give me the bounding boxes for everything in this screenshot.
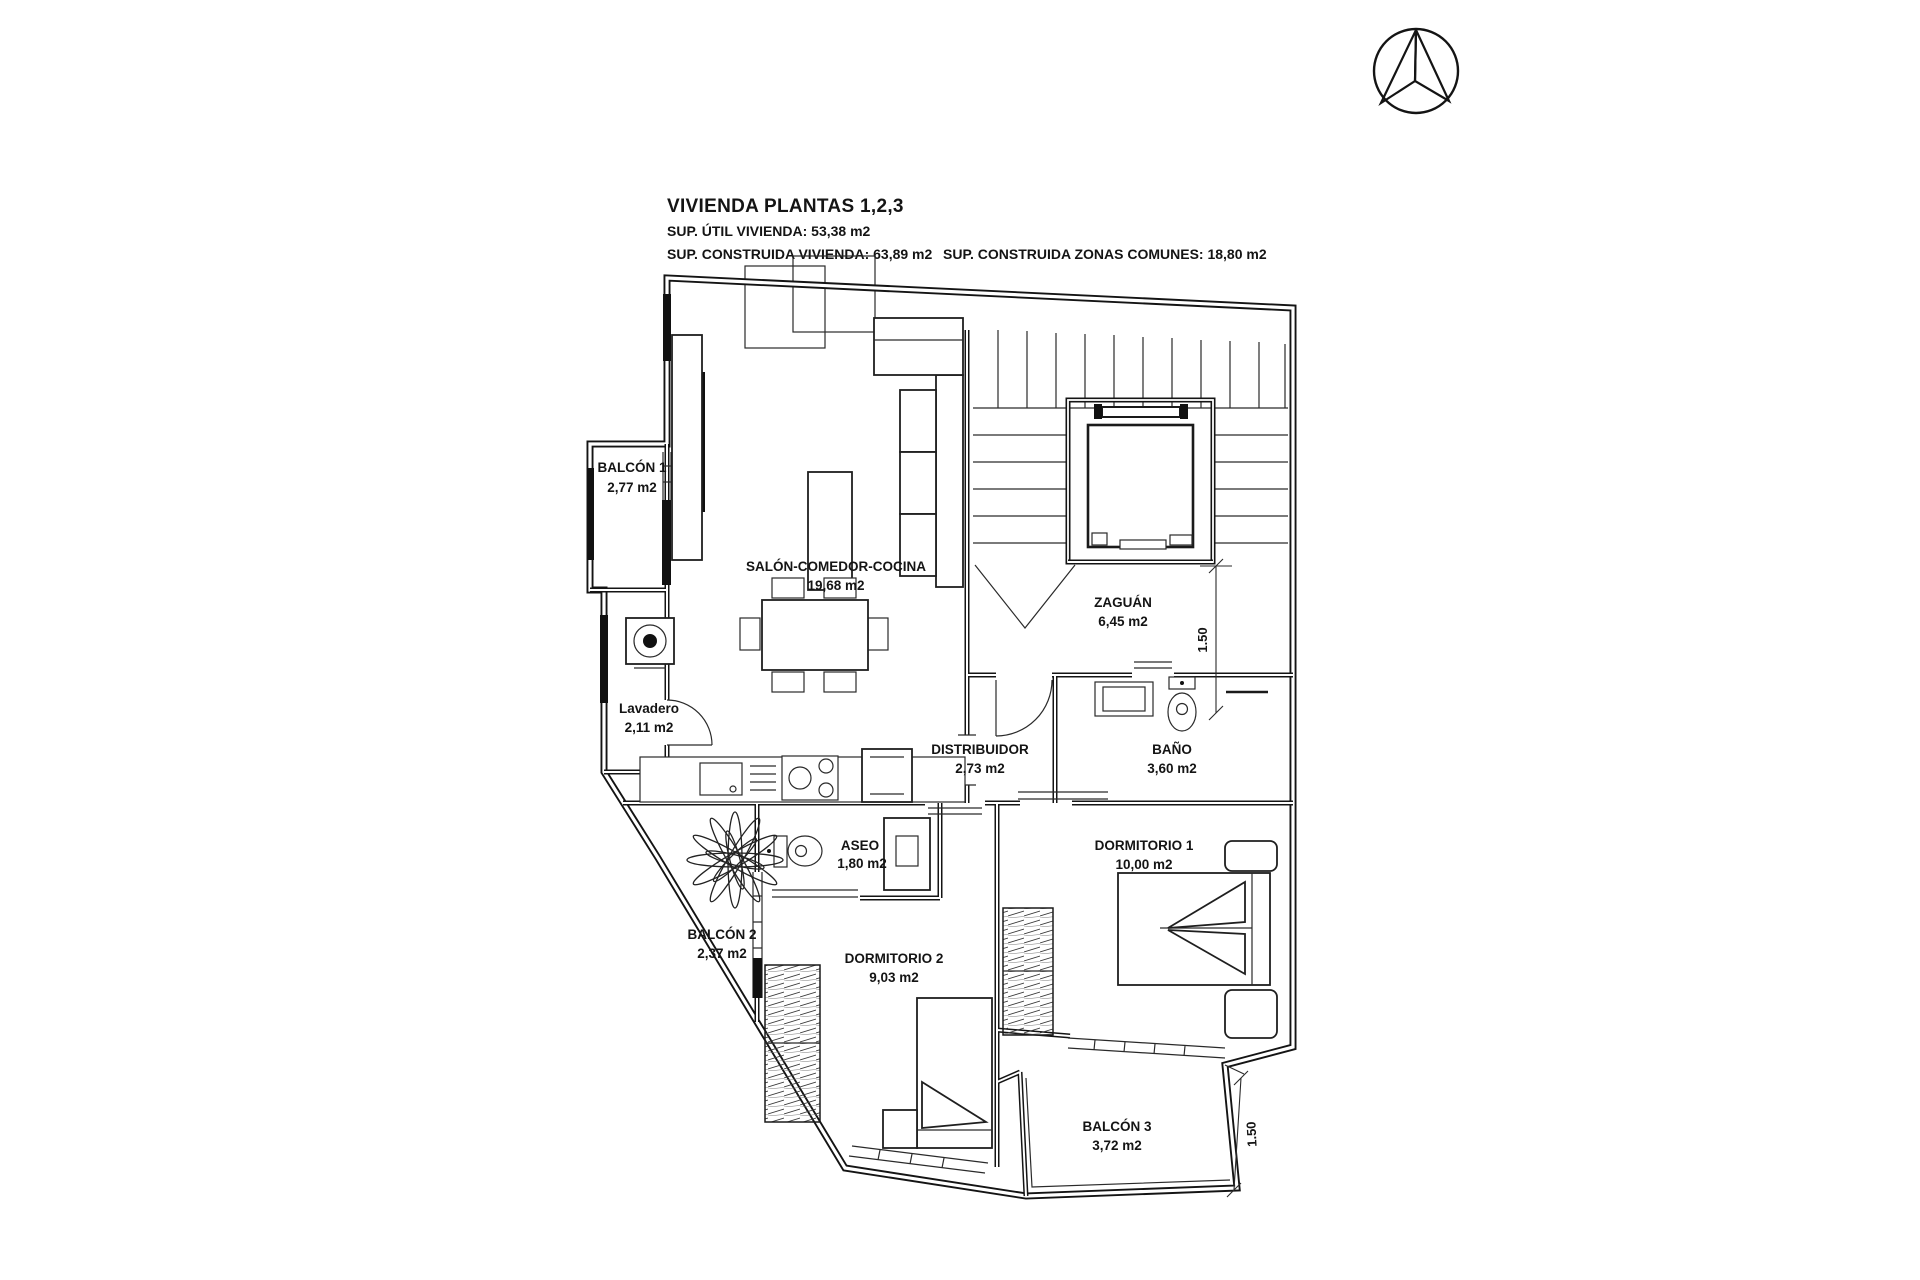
- surface-construida-line: SUP. CONSTRUIDA VIVIENDA: 63,89 m2: [667, 246, 933, 262]
- dormitorio2-furniture: [765, 965, 992, 1148]
- nightstand: [1225, 841, 1277, 871]
- door-bano: [1134, 662, 1172, 668]
- floor-plan-drawing: VIVIENDA PLANTAS 1,2,3 SUP. ÚTIL VIVIEND…: [0, 0, 1920, 1280]
- svg-text:BAÑO: BAÑO: [1152, 742, 1192, 757]
- svg-text:2,77 m2: 2,77 m2: [607, 480, 657, 495]
- svg-text:Lavadero: Lavadero: [619, 701, 679, 716]
- svg-text:2,73 m2: 2,73 m2: [955, 761, 1005, 776]
- plant: [687, 812, 783, 908]
- svg-text:10,00 m2: 10,00 m2: [1115, 857, 1172, 872]
- room-label-lavadero: Lavadero 2,11 m2: [619, 701, 679, 735]
- elevator: [1068, 400, 1213, 562]
- svg-text:6,45 m2: 6,45 m2: [1098, 614, 1148, 629]
- cabinet-tall: [672, 335, 702, 560]
- dimension-label: 1.50: [1195, 627, 1210, 652]
- window-salon-left: [663, 294, 671, 361]
- svg-text:ASEO: ASEO: [841, 838, 879, 853]
- surface-comunes-line: SUP. CONSTRUIDA ZONAS COMUNES: 18,80 m2: [943, 246, 1267, 262]
- bano-toilet: [1168, 677, 1196, 731]
- bed-single: [917, 998, 992, 1148]
- window-balcon2: [753, 958, 762, 998]
- window-balcon1-outer: [587, 468, 594, 560]
- page-title: VIVIENDA PLANTAS 1,2,3: [667, 196, 904, 217]
- svg-text:9,03 m2: 9,03 m2: [869, 970, 919, 985]
- room-label-bano: BAÑO 3,60 m2: [1147, 742, 1197, 776]
- dining-table: [740, 578, 888, 692]
- stove: [782, 756, 838, 800]
- sliding-door-aseo: [772, 890, 858, 897]
- svg-text:BALCÓN 3: BALCÓN 3: [1082, 1119, 1151, 1134]
- svg-text:2,11 m2: 2,11 m2: [625, 720, 674, 735]
- sofa: [808, 318, 963, 590]
- upper-structure-outline: [745, 256, 875, 348]
- bano-fixtures: [1095, 677, 1268, 731]
- dimension-label: 1.50: [1243, 1121, 1259, 1147]
- svg-text:BALCÓN 1: BALCÓN 1: [597, 460, 666, 475]
- room-label-balcon3: BALCÓN 3 3,72 m2: [1082, 1119, 1151, 1153]
- svg-text:1,80 m2: 1,80 m2: [837, 856, 887, 871]
- room-label-zaguan: ZAGUÁN 6,45 m2: [1094, 595, 1152, 629]
- floor-plan-sheet: VIVIENDA PLANTAS 1,2,3 SUP. ÚTIL VIVIEND…: [0, 0, 1920, 1280]
- door-zaguan-distribuidor: [996, 680, 1052, 736]
- stair-direction-arrow: [975, 565, 1075, 628]
- bed-double: [1118, 873, 1270, 985]
- sliding-door-dormitorio2: [928, 808, 982, 814]
- svg-text:DORMITORIO 2: DORMITORIO 2: [845, 951, 944, 966]
- elevator-door: [1102, 407, 1180, 417]
- nightstand: [1225, 990, 1277, 1038]
- svg-text:ZAGUÁN: ZAGUÁN: [1094, 595, 1152, 610]
- surface-util-line: SUP. ÚTIL VIVIENDA: 53,38 m2: [667, 222, 871, 239]
- dimension-right-upper: 1.50: [1195, 559, 1232, 720]
- room-label-balcon2: BALCÓN 2 2,37 m2: [687, 927, 756, 961]
- svg-text:3,60 m2: 3,60 m2: [1147, 761, 1197, 776]
- room-label-dormitorio1: DORMITORIO 1 10,00 m2: [1095, 838, 1194, 872]
- window-lavadero: [600, 615, 608, 703]
- washing-machine: [626, 618, 674, 668]
- svg-text:DORMITORIO 1: DORMITORIO 1: [1095, 838, 1194, 853]
- svg-text:19,68 m2: 19,68 m2: [807, 578, 864, 593]
- room-label-dormitorio2: DORMITORIO 2 9,03 m2: [845, 951, 944, 985]
- north-arrow-icon: [1374, 29, 1458, 113]
- svg-text:BALCÓN 2: BALCÓN 2: [687, 927, 756, 942]
- window-dormitorio1: [1068, 1038, 1225, 1058]
- svg-text:SALÓN-COMEDOR-COCINA: SALÓN-COMEDOR-COCINA: [746, 559, 926, 574]
- kitchen-counter: [640, 749, 965, 802]
- svg-text:3,72 m2: 3,72 m2: [1092, 1138, 1142, 1153]
- title-block: VIVIENDA PLANTAS 1,2,3 SUP. ÚTIL VIVIEND…: [667, 196, 1267, 262]
- aseo-toilet: [788, 836, 822, 866]
- window-balcon1-inner: [662, 500, 671, 585]
- svg-text:2,37 m2: 2,37 m2: [697, 946, 747, 961]
- aseo-fixtures: [767, 818, 930, 890]
- side-table: [883, 1110, 917, 1148]
- sliding-door-dormitorio1: [1018, 792, 1108, 799]
- svg-text:DISTRIBUIDOR: DISTRIBUIDOR: [931, 742, 1029, 757]
- room-label-aseo: ASEO 1,80 m2: [837, 838, 887, 871]
- room-label-balcon1: BALCÓN 1 2,77 m2: [597, 460, 666, 495]
